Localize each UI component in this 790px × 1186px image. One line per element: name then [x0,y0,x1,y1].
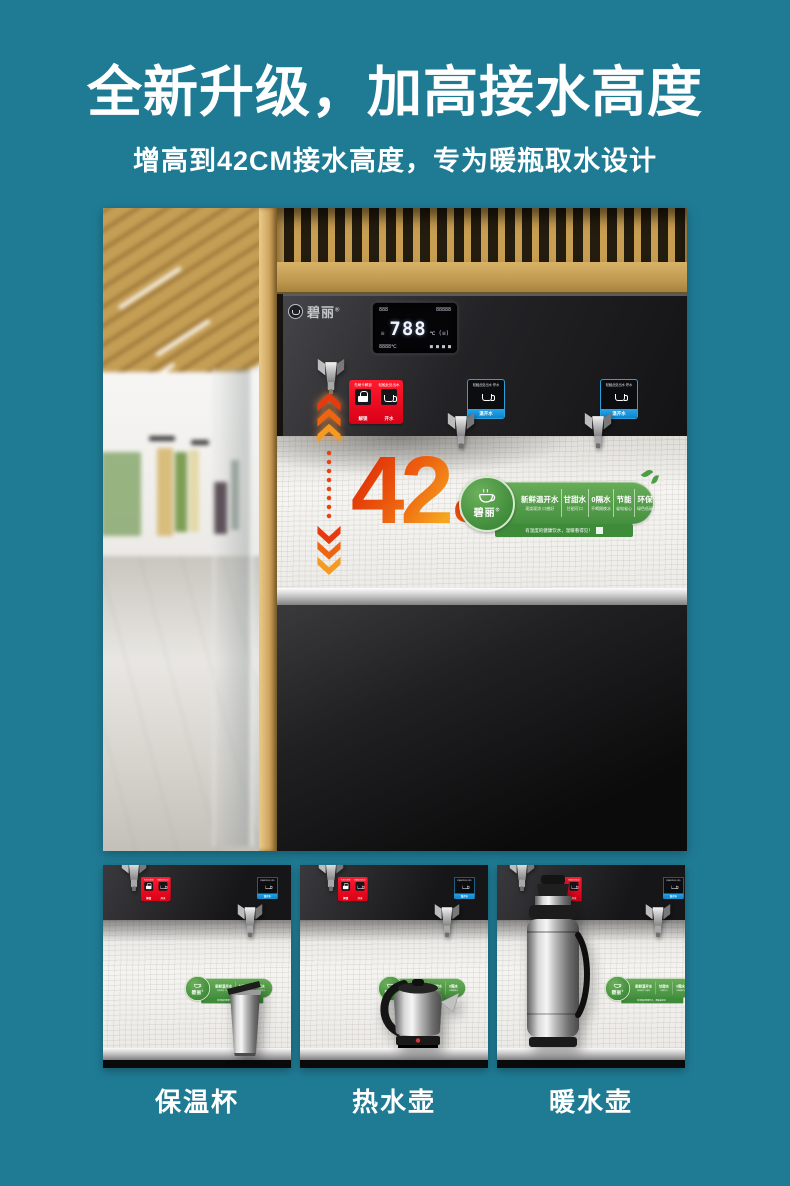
door-panel [189,450,199,532]
display-unit: ℃ [430,331,436,337]
display-small-right: 88888 [436,307,451,313]
thermos-flask-image [515,873,591,1053]
wall-art [103,452,141,536]
page-header: 全新升级，加高接水高度 增高到42CM接水高度，专为暖瓶取水设计 [0,62,790,178]
vacuum-cup-image [215,977,275,1057]
cup-icon [264,882,272,890]
display-bars: ■ ■ ■ ■ [430,344,451,350]
faucet-warm [434,903,460,939]
arrow-up-icon [316,392,342,444]
warm-water-sticker: 轻触此处出水·停水温开水 [454,877,475,899]
warm-water-sticker: 轻触此处出水·停水温开水 [257,877,278,899]
hallway-scene [103,208,259,851]
dispenser-cabinet [277,605,687,851]
led-display: 888 88888 ≡ 788 ℃ (≡) 8888℃ ■ ■ ■ ■ [372,302,458,354]
hero-photo: 碧丽® 888 88888 ≡ 788 ℃ (≡) 8888℃ ■ ■ ■ ■ [103,208,687,851]
cup-icon [159,882,168,891]
cup-icon [670,882,678,890]
faucet-warm [645,903,671,939]
cup-icon [356,882,365,891]
cabinet-strip [497,1060,685,1068]
wood-beam [277,262,687,294]
warm-water-sticker: 轻触此处出水·停水温开水 [663,877,684,899]
lock-icon [144,882,153,891]
brand-logo-icon [288,304,303,319]
counter-strip [277,588,687,605]
hot-water-sticker: 先刷卡解锁解锁 轻触此处出水开水 [141,877,171,901]
faucet-hot [317,358,345,396]
page-subtitle: 增高到42CM接水高度，专为暖瓶取水设计 [0,139,790,178]
display-small-left: 888 [379,307,388,313]
faucet-warm [584,412,612,450]
lock-icon [355,389,371,405]
qr-box [596,527,603,534]
slat-ceiling [277,208,687,262]
brand-badge: 碧丽® [459,476,515,532]
cup-icon [479,388,493,402]
electric-kettle-image [370,960,466,1060]
cup-icon [612,388,626,402]
usage-card-label: 热水壶 [300,1082,488,1119]
glass-wall [213,368,253,846]
wood-pillar [259,208,277,851]
usage-card-cup: 先刷卡解锁解锁 轻触此处出水开水 轻触此处出水·停水温开水 新鲜温开水现烧现凉 … [103,865,291,1068]
hot-water-sticker: 先刷卡解锁 解锁 轻触此处出水 开水 [349,380,403,424]
cup-icon [381,389,397,405]
height-value: 42 [351,448,450,534]
dotted-measure-line [326,450,332,520]
cabinet-strip [300,1060,488,1068]
faucet-warm [447,412,475,450]
brand-badge: 碧丽® [605,976,630,1001]
page-title: 全新升级，加高接水高度 [0,62,790,123]
usage-card-kettle: 先刷卡解锁解锁 轻触此处出水开水 轻触此处出水·停水温开水 新鲜温开水现烧现凉 … [300,865,488,1068]
cup-icon [461,882,469,890]
promo-page: 全新升级，加高接水高度 增高到42CM接水高度，专为暖瓶取水设计 [0,0,790,1186]
water-dispenser: 碧丽® 888 88888 ≡ 788 ℃ (≡) 8888℃ ■ ■ ■ ■ [277,208,687,851]
track-light [149,436,175,441]
cup-icon [476,489,498,504]
brand-logo: 碧丽® [288,302,340,321]
arrow-down-icon [316,524,342,576]
brand-name: 碧丽® [307,302,340,321]
hot-water-sticker: 先刷卡解锁解锁 轻触此处出水开水 [338,877,368,901]
track-light [191,440,209,445]
brand-badge: 碧丽® [185,976,210,1001]
usage-card-flask: 先刷卡解锁解锁 轻触此处出水开水 轻触此处出水·停水温开水 新鲜温开水现烧现凉 … [497,865,685,1068]
banner-slogan: 有温度的健康饮水，温暖看得见！ [495,524,633,537]
cabinet-strip [103,1060,291,1068]
door-panel [175,452,187,532]
faucet-warm [237,903,263,939]
lock-icon [341,882,350,891]
banner-slogan: 有温度的健康饮水，温暖看得见！ [621,998,683,1004]
feature-banner: 新鲜温开水现烧现凉 口感好 甘甜水甘甜可口 0隔水不喝隔夜水 节能省电省心 环保… [459,474,659,544]
usage-card-label: 保温杯 [103,1082,291,1119]
door-panel [157,448,173,536]
display-temp: 8888℃ [379,344,397,350]
display-aux-icon: (≡) [438,330,449,337]
display-indicators: ≡ [381,330,385,337]
feature-banner: 新鲜温开水现烧现凉 口感好 甘甜水甘甜可口 0隔水不喝隔夜水 有温度的健康饮水，… [605,975,685,1007]
usage-card-label: 暖水壶 [497,1082,685,1119]
leaf-icon [651,474,659,485]
display-main-value: 788 [389,318,426,340]
